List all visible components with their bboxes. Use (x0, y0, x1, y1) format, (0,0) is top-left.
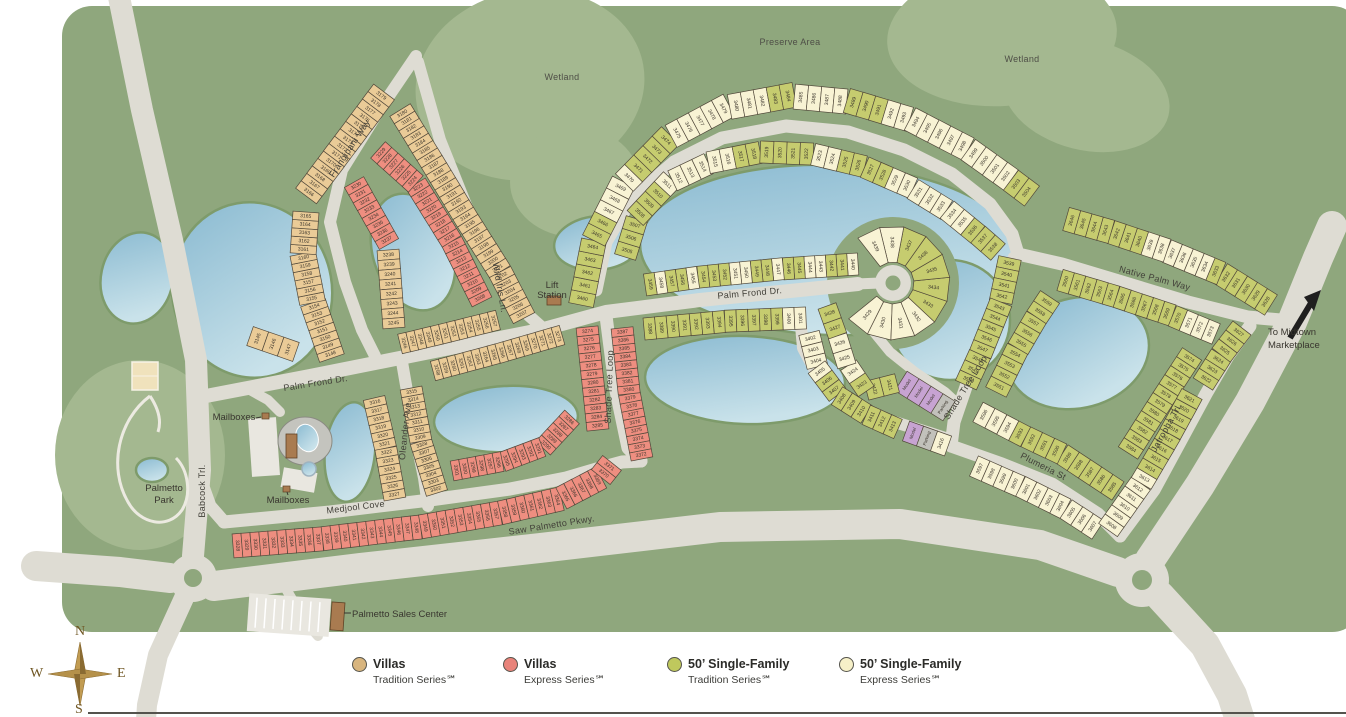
svg-text:3333: 3333 (278, 536, 285, 548)
svg-text:3382: 3382 (621, 370, 633, 377)
area-label: Wetland (1005, 54, 1040, 64)
svg-text:3277: 3277 (584, 354, 596, 361)
legend-label: 50’ Single-Family (688, 657, 789, 671)
svg-text:3520: 3520 (777, 147, 783, 159)
svg-text:3334: 3334 (287, 536, 294, 548)
svg-text:3161: 3161 (298, 246, 310, 253)
svg-text:3385: 3385 (618, 345, 630, 352)
lot-3389[interactable]: 3389 (655, 316, 669, 339)
sf-tradition-dot-icon (667, 657, 682, 672)
community-site-map[interactable]: 3145314631473148314931503151315231533154… (0, 0, 1346, 717)
legend-sublabel: Tradition Series℠ (688, 674, 789, 686)
svg-text:3238: 3238 (383, 252, 395, 259)
clubhouse-icon (286, 434, 297, 458)
svg-text:3451: 3451 (731, 268, 738, 280)
lot-3395[interactable]: 3395 (724, 310, 736, 332)
svg-text:3449: 3449 (753, 265, 760, 277)
lot-3393[interactable]: 3393 (701, 312, 715, 335)
svg-text:3398: 3398 (762, 314, 768, 326)
area-label: Preserve Area (760, 37, 821, 47)
svg-text:3397: 3397 (750, 314, 756, 326)
compass-rose-icon: N S W E (28, 628, 138, 717)
poi-label: Marketplace (1268, 340, 1320, 351)
svg-text:3401: 3401 (797, 313, 803, 325)
compass-w: W (30, 666, 43, 682)
poi-label: Mailboxes (213, 412, 256, 423)
svg-text:3399: 3399 (773, 313, 779, 325)
lot-3519[interactable]: 3519 (760, 141, 774, 164)
amenity-parking (248, 417, 280, 477)
svg-text:3283: 3283 (590, 405, 602, 412)
svg-text:3386: 3386 (618, 337, 630, 344)
site-map-page: 3145314631473148314931503151315231533154… (0, 0, 1346, 717)
svg-text:3388: 3388 (646, 323, 653, 335)
compass-s: S (75, 702, 83, 717)
road-saw-palmetto-pkwy-west (36, 566, 170, 578)
svg-text:3487: 3487 (824, 94, 831, 106)
svg-text:3392: 3392 (692, 318, 699, 330)
svg-text:3400: 3400 (785, 313, 791, 325)
compass-n: N (75, 624, 85, 640)
svg-text:3328: 3328 (234, 540, 241, 552)
svg-text:3434: 3434 (928, 284, 940, 291)
lot-3245[interactable]: 3245 (382, 317, 405, 328)
legend-item-sf-tradition: 50’ Single-Family Tradition Series℠ (667, 655, 789, 686)
svg-text:3395: 3395 (727, 315, 733, 327)
svg-text:3522: 3522 (804, 148, 810, 160)
lot-3445[interactable]: 3445 (793, 256, 805, 279)
spa-pool-icon (302, 462, 316, 476)
lot-3520[interactable]: 3520 (773, 141, 787, 164)
svg-text:3488: 3488 (837, 95, 844, 107)
legend-sublabel: Tradition Series℠ (373, 674, 457, 686)
svg-text:3331: 3331 (261, 538, 268, 550)
legend-item-villas-tradition: Villas Tradition Series℠ (352, 655, 457, 686)
lot-3400[interactable]: 3400 (782, 307, 794, 329)
svg-text:3164: 3164 (299, 221, 311, 228)
svg-text:3330: 3330 (252, 538, 259, 550)
lot-3441[interactable]: 3441 (836, 254, 848, 277)
cul-de-sac-center (886, 276, 901, 291)
svg-text:3245: 3245 (388, 320, 400, 327)
svg-text:3242: 3242 (386, 291, 398, 298)
svg-text:3335: 3335 (296, 535, 303, 547)
lot-3443[interactable]: 3443 (815, 255, 827, 278)
svg-text:3389: 3389 (657, 322, 664, 334)
villas-tradition-dot-icon (352, 657, 367, 672)
villas-express-dot-icon (503, 657, 518, 672)
svg-text:3442: 3442 (828, 260, 835, 272)
legend-sublabel: Express Series℠ (860, 674, 961, 686)
svg-text:3284: 3284 (591, 414, 603, 421)
lot-3442[interactable]: 3442 (825, 254, 837, 277)
lot-3444[interactable]: 3444 (804, 256, 816, 279)
poi-label: To Midtown (1268, 327, 1316, 338)
svg-text:3239: 3239 (383, 261, 395, 268)
svg-text:3281: 3281 (588, 388, 600, 395)
svg-text:3244: 3244 (387, 310, 399, 317)
svg-text:3444: 3444 (806, 261, 813, 273)
svg-text:3278: 3278 (585, 362, 597, 369)
svg-text:3394: 3394 (715, 316, 722, 328)
roundabout-island (184, 569, 202, 587)
svg-text:3162: 3162 (298, 238, 310, 245)
legend-label: 50’ Single-Family (860, 657, 961, 671)
svg-text:3393: 3393 (704, 317, 711, 329)
sales-center-building-icon (330, 602, 345, 631)
area-label: Wetland (545, 72, 580, 82)
lot-3521[interactable]: 3521 (786, 142, 800, 165)
roundabout-island (1132, 570, 1152, 590)
svg-text:3336: 3336 (305, 534, 312, 546)
svg-text:3453: 3453 (710, 270, 717, 282)
svg-text:3380: 3380 (623, 387, 635, 394)
svg-text:3243: 3243 (386, 300, 398, 307)
svg-text:3443: 3443 (817, 261, 824, 273)
svg-text:3381: 3381 (622, 378, 634, 385)
legend-item-villas-express: Villas Express Series℠ (503, 655, 605, 686)
street-label: Babcock Trl. (197, 464, 207, 517)
svg-text:3282: 3282 (589, 397, 601, 404)
svg-text:3485: 3485 (798, 91, 805, 103)
svg-text:3396: 3396 (739, 315, 745, 327)
svg-text:3387: 3387 (617, 329, 629, 336)
legend-label: Villas (524, 657, 556, 671)
svg-text:3240: 3240 (384, 271, 396, 278)
svg-text:3390: 3390 (669, 321, 676, 333)
svg-text:3391: 3391 (681, 319, 688, 331)
svg-text:3519: 3519 (764, 146, 770, 158)
lake (136, 458, 168, 482)
svg-text:3447: 3447 (774, 263, 781, 275)
svg-text:3165: 3165 (300, 213, 312, 220)
legend-item-sf-express: 50’ Single-Family Express Series℠ (839, 655, 961, 686)
svg-text:3450: 3450 (742, 267, 749, 279)
svg-text:3452: 3452 (721, 269, 728, 281)
lot-3165[interactable]: 3165 (292, 211, 319, 221)
svg-text:3440: 3440 (849, 259, 856, 271)
lot-3440[interactable]: 3440 (847, 253, 859, 276)
svg-text:3280: 3280 (587, 380, 599, 387)
svg-text:3454: 3454 (699, 271, 706, 283)
svg-text:3332: 3332 (270, 537, 277, 549)
poi-label: Palmetto (145, 483, 183, 494)
lot-3396[interactable]: 3396 (736, 309, 748, 331)
legend-sublabel: Express Series℠ (524, 674, 605, 686)
svg-text:3329: 3329 (243, 539, 250, 551)
svg-text:3274: 3274 (582, 328, 594, 335)
sf-express-dot-icon (839, 657, 854, 672)
mailbox-icon (262, 413, 269, 419)
lot-3398[interactable]: 3398 (759, 308, 771, 330)
svg-text:3337: 3337 (314, 533, 321, 545)
poi-label: Station (537, 290, 567, 301)
compass-e: E (117, 666, 126, 682)
svg-text:3163: 3163 (299, 230, 311, 237)
svg-text:3446: 3446 (785, 263, 792, 275)
svg-text:3441: 3441 (838, 259, 845, 271)
page-rule (88, 712, 1346, 714)
poi-label: Park (154, 495, 174, 506)
svg-text:3486: 3486 (811, 92, 818, 104)
svg-text:3241: 3241 (385, 281, 397, 288)
lot-3401[interactable]: 3401 (794, 307, 806, 329)
lot-3394[interactable]: 3394 (712, 311, 726, 334)
svg-text:3384: 3384 (619, 354, 631, 361)
lot-3397[interactable]: 3397 (748, 309, 760, 331)
legend-label: Villas (373, 657, 405, 671)
svg-text:3438: 3438 (889, 237, 895, 248)
svg-text:3383: 3383 (620, 362, 632, 369)
svg-text:3279: 3279 (586, 371, 598, 378)
mailbox-icon (283, 486, 290, 492)
svg-text:3521: 3521 (790, 147, 796, 159)
svg-text:3448: 3448 (763, 264, 770, 276)
poi-label: Palmetto Sales Center (352, 609, 447, 620)
svg-text:3276: 3276 (583, 345, 595, 352)
lot-3391[interactable]: 3391 (678, 314, 692, 337)
poi-label: Mailboxes (267, 495, 310, 506)
svg-text:3275: 3275 (583, 337, 595, 344)
lot-3399[interactable]: 3399 (771, 308, 783, 330)
svg-text:3445: 3445 (796, 262, 803, 274)
